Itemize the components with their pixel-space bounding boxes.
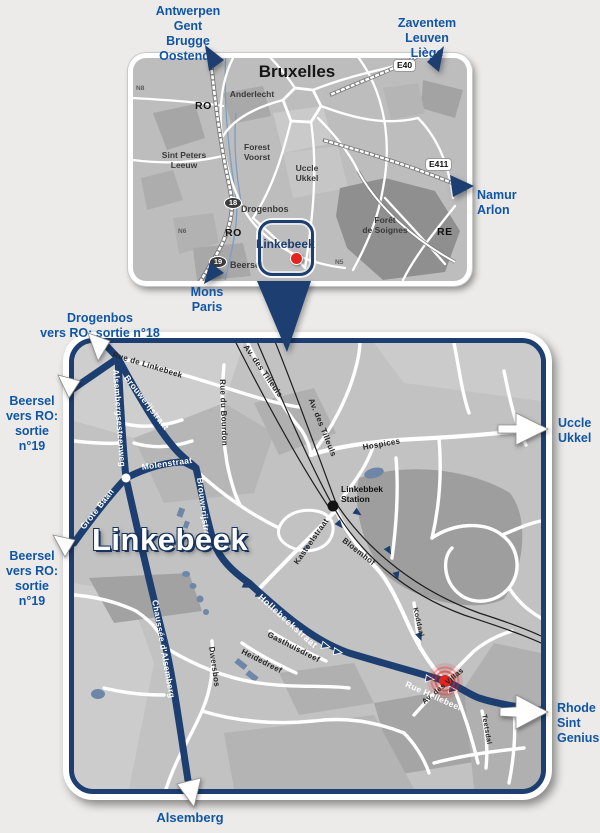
area-label-forest-voorst: Forest Voorst [227, 143, 287, 162]
edge-label-antwerpen: Antwerpen Gent Brugge Oostende [118, 4, 258, 64]
edge-label-beersel-exit-bottom: Beersel vers RO: sortie n°19 [0, 549, 64, 609]
e40-badge: E40 [394, 60, 415, 71]
station-dot [328, 501, 339, 512]
edge-label-uccle: Uccle Ukkel [558, 416, 600, 446]
road-code-n8: N8 [136, 85, 144, 92]
road-code-ro-top: RO [195, 100, 212, 112]
area-label-drogenbos: Drogenbos [241, 205, 285, 215]
edge-label-alsemberg: Alsemberg [130, 810, 250, 825]
area-label-anderlecht: Anderlecht [217, 90, 287, 100]
road-code-re: RE [437, 226, 453, 238]
map-page: Bruxelles Anderlecht Sint Peters Leeuw F… [0, 0, 600, 833]
detail-map-border: Rue de Linkebeek Alsembergsesteenweg Bro… [69, 338, 546, 794]
detail-map-content: Rue de Linkebeek Alsembergsesteenweg Bro… [74, 343, 541, 789]
area-label-uccle-ukkel: Uccle Ukkel [277, 164, 337, 183]
e411-badge: E411 [426, 159, 451, 170]
linkebeek-highlight-label: Linkebeek [256, 237, 310, 251]
edge-label-rhode: Rhode Sint Genius [557, 701, 600, 746]
area-label-foret-de-soignes: Forêt de Soignes [355, 216, 415, 235]
edge-label-beersel-exit-top: Beersel vers RO: sortie n°19 [0, 394, 64, 454]
edge-label-mons: Mons Paris [157, 285, 257, 315]
area-label-sint-peters-leeuw: Sint Peters Leeuw [149, 151, 219, 170]
linkebeek-location-dot [290, 252, 303, 265]
road-code-n6: N6 [178, 228, 186, 235]
inset-map-content: Bruxelles Anderlecht Sint Peters Leeuw F… [133, 58, 467, 281]
roundabout [122, 474, 131, 483]
town-name-label: Linkebeek [92, 522, 244, 558]
road-code-ro-bottom: RO [225, 227, 242, 239]
exit-19-badge: 19 [210, 257, 226, 267]
detail-map: Rue de Linkebeek Alsembergsesteenweg Bro… [63, 332, 552, 800]
road-code-n5: N5 [335, 259, 343, 266]
edge-label-zaventem: Zaventem Leuven Liège [357, 16, 497, 61]
station-label: Linkebbek Station [341, 484, 383, 504]
detail-map-drawing [74, 343, 541, 789]
inset-map: Bruxelles Anderlecht Sint Peters Leeuw F… [128, 53, 472, 286]
edge-label-drogenbos-exit: Drogenbos vers RO: sortie n°18 [30, 311, 170, 341]
exit-18-badge: 18 [225, 198, 241, 208]
inset-city-title: Bruxelles [237, 62, 357, 82]
edge-label-namur: Namur Arlon [477, 188, 547, 218]
